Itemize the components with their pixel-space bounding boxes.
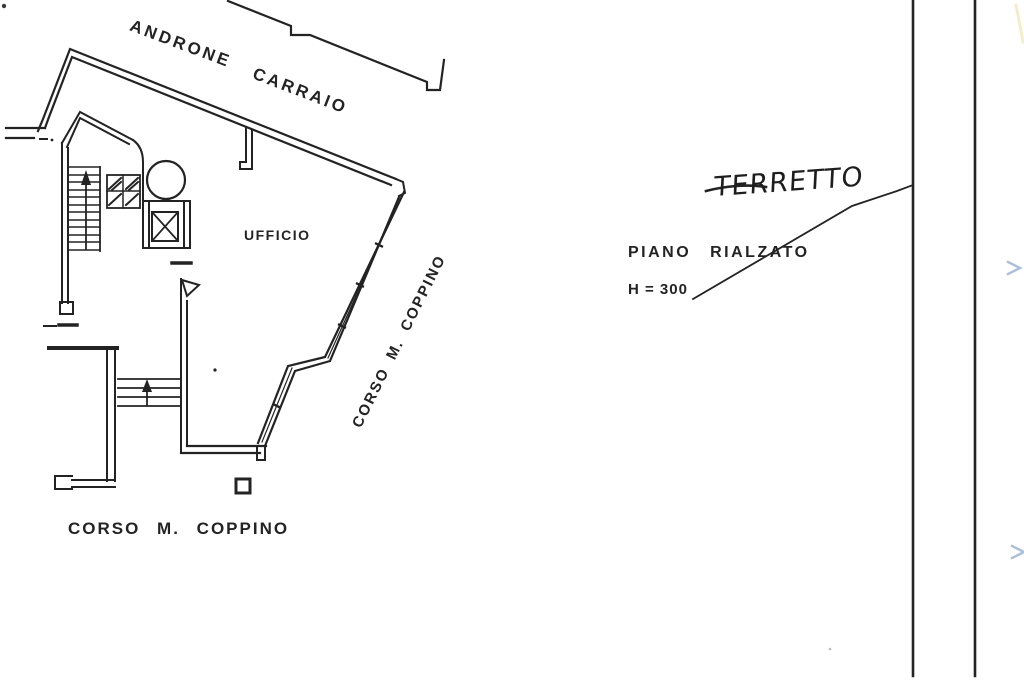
blue-chevron-artifact: [1012, 546, 1024, 558]
elevator-shaft: [143, 201, 190, 248]
andron-wall: [6, 49, 405, 196]
yellow-streak-artifact: [1016, 5, 1023, 42]
door-pennant: [182, 280, 199, 296]
ink-speck: [2, 4, 6, 8]
blue-chevron-artifact: [1008, 262, 1020, 274]
label-ceiling-height: H = 300: [628, 281, 688, 298]
floor-plan-linework: [0, 0, 1024, 681]
lower-wall-and-bottom: [181, 279, 266, 493]
ink-speck: [829, 648, 832, 651]
entrance-steps: [118, 379, 181, 406]
door-square-symbol: [236, 479, 250, 493]
column-circle: [147, 161, 185, 199]
label-street-bottom: CORSO M. COPPINO: [68, 519, 289, 539]
neighbor-building: [49, 348, 117, 489]
scan-artifacts: [2, 4, 1024, 651]
label-ufficio-room: UFFICIO: [244, 227, 311, 243]
label-floor-level: PIANO RIALZATO: [628, 244, 810, 262]
unit-left-wall: [44, 112, 143, 326]
main-staircase: [68, 167, 140, 251]
ink-speck: [213, 368, 216, 371]
scanned-floor-plan: ANDRONE CARRAIO UFFICIO CORSO M. COPPINO…: [0, 0, 1024, 681]
right-boundary-wall: [913, 0, 975, 676]
